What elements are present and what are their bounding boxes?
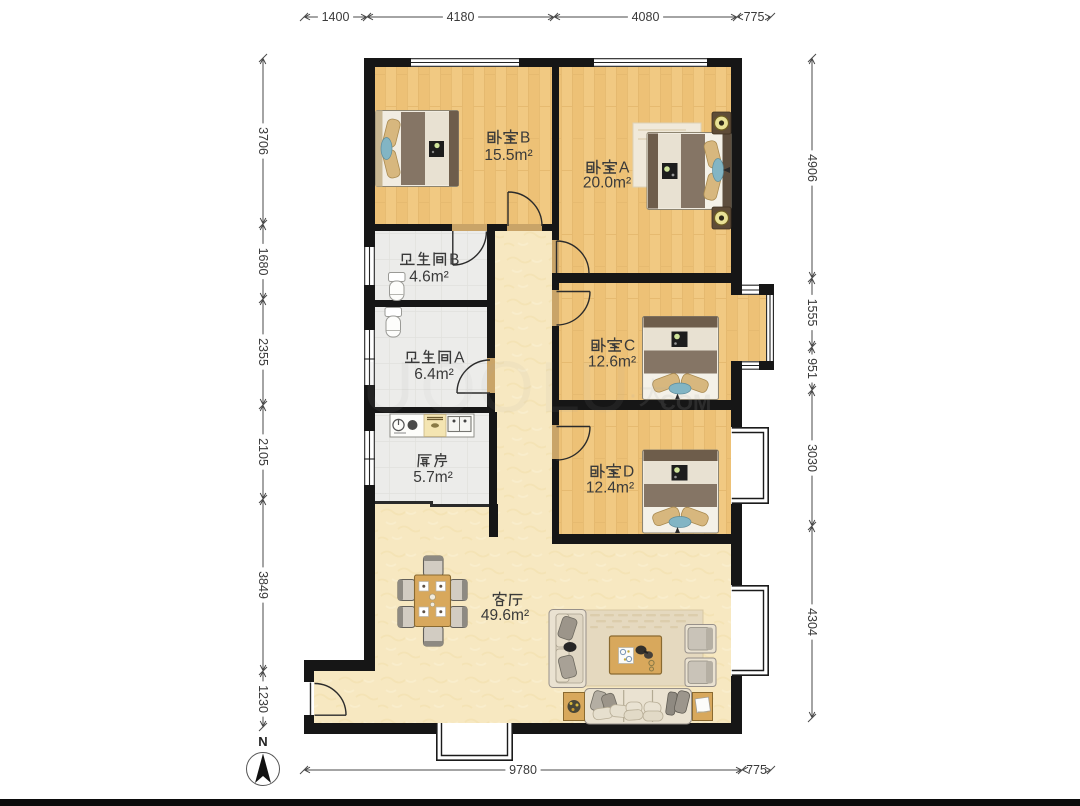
svg-text:1555: 1555 xyxy=(805,299,819,327)
svg-text:4080: 4080 xyxy=(632,10,660,24)
svg-text:4906: 4906 xyxy=(805,154,819,182)
svg-text:1680: 1680 xyxy=(256,248,270,276)
svg-text:D: D xyxy=(623,464,634,481)
svg-text:4304: 4304 xyxy=(805,608,819,636)
svg-text:12.6m²: 12.6m² xyxy=(588,354,636,371)
svg-text:49.6m²: 49.6m² xyxy=(481,607,529,624)
svg-text:3706: 3706 xyxy=(256,127,270,155)
svg-text:6.4m²: 6.4m² xyxy=(414,366,454,383)
svg-text:951: 951 xyxy=(805,358,819,379)
svg-text:4.6m²: 4.6m² xyxy=(409,269,449,286)
svg-text:B: B xyxy=(520,130,530,147)
svg-text:15.5m²: 15.5m² xyxy=(484,147,532,164)
svg-text:B: B xyxy=(449,252,459,269)
svg-text:C: C xyxy=(624,338,635,355)
svg-text:4180: 4180 xyxy=(447,10,475,24)
svg-text:9780: 9780 xyxy=(509,763,537,777)
svg-text:3849: 3849 xyxy=(256,571,270,599)
svg-text:O: O xyxy=(478,348,540,428)
svg-text:2355: 2355 xyxy=(256,338,270,366)
svg-text:COM: COM xyxy=(660,390,711,415)
svg-text:20.0m²: 20.0m² xyxy=(583,175,631,192)
svg-text:1230: 1230 xyxy=(256,685,270,713)
svg-text:A: A xyxy=(454,350,465,367)
svg-text:12.4m²: 12.4m² xyxy=(586,480,634,497)
svg-text:775: 775 xyxy=(744,10,765,24)
svg-text:2105: 2105 xyxy=(256,438,270,466)
svg-text:5.7m²: 5.7m² xyxy=(413,469,453,486)
svg-text:1400: 1400 xyxy=(322,10,350,24)
svg-text:775: 775 xyxy=(746,763,767,777)
svg-text:N: N xyxy=(258,734,267,749)
svg-text:3030: 3030 xyxy=(805,444,819,472)
